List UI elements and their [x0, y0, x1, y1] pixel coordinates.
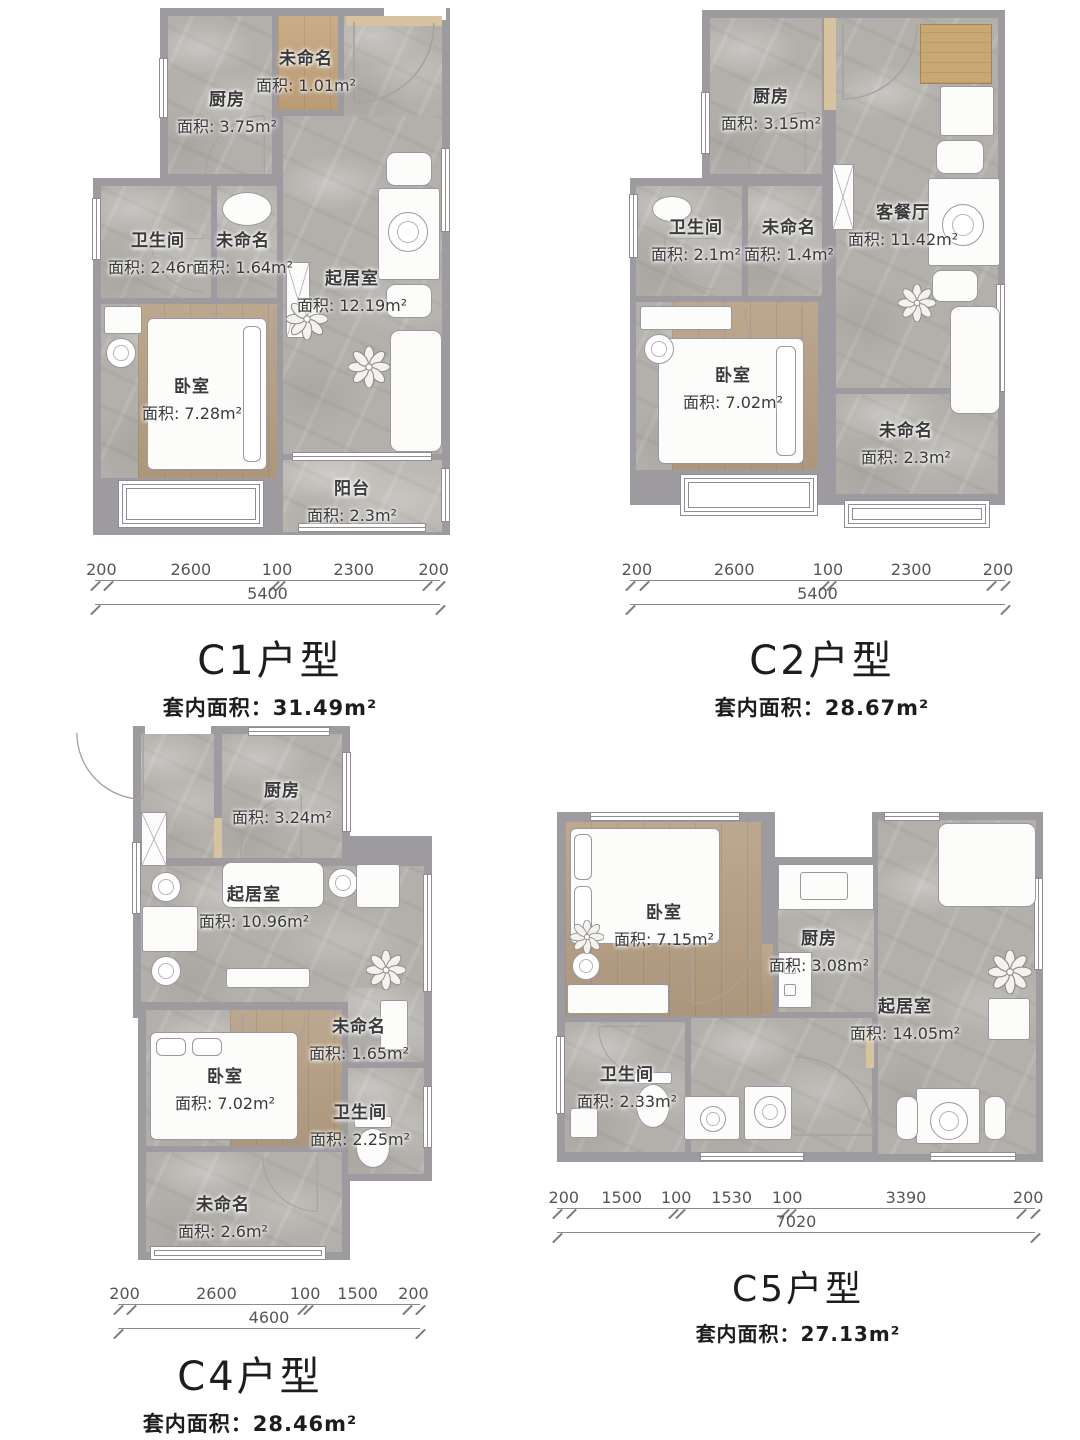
plant-symbol	[348, 346, 390, 388]
bay-window	[680, 474, 818, 516]
dim-seg: 200	[95, 558, 108, 580]
dim-seg: 1500	[308, 1282, 406, 1304]
room-name: 起居室	[199, 880, 309, 905]
room-label: 起居室面积: 14.05m²	[850, 992, 960, 1044]
dim-seg: 2600	[108, 558, 274, 580]
window	[930, 1152, 1016, 1161]
plan-area: 套内面积：28.46m²	[143, 1408, 358, 1438]
chair	[932, 270, 978, 302]
sofa	[950, 306, 1000, 414]
room-label: 厨房面积: 3.15m²	[721, 82, 821, 134]
window	[884, 812, 940, 821]
room-area: 面积: 1.4m²	[744, 241, 834, 265]
dim-seg: 200	[1021, 1186, 1035, 1208]
room-name: 卫生间	[651, 213, 741, 238]
room-area: 面积: 10.96m²	[199, 908, 309, 932]
bed-pillow	[574, 834, 592, 880]
plant-symbol	[898, 284, 936, 322]
room-area: 面积: 2.33m²	[577, 1088, 677, 1112]
dim-seg: 100	[784, 1186, 791, 1208]
side-table	[328, 868, 358, 898]
window	[423, 1086, 432, 1148]
burner	[784, 984, 796, 996]
room-name: 客餐厅	[848, 198, 958, 223]
washing-machine	[106, 338, 136, 368]
window	[248, 727, 330, 736]
plan-title: C4户型	[143, 1344, 358, 1402]
room-area: 面积: 7.02m²	[683, 389, 783, 413]
window	[556, 1036, 565, 1114]
dimension-lines: 200 2600 100 1500 200 4600	[118, 1282, 420, 1329]
window	[441, 148, 450, 232]
washer-drum	[754, 1096, 786, 1128]
room-label: 阳台面积: 2.3m²	[307, 474, 397, 526]
floorplan-sheet: 未命名面积: 1.01m² 厨房面积: 3.75m² 卫生间面积: 2.46m²…	[0, 0, 1080, 1440]
plan-title: C5户型	[696, 1260, 901, 1312]
shelf	[640, 306, 732, 330]
balcony-door-window	[292, 452, 432, 461]
room-area: 面积: 14.05m²	[850, 1020, 960, 1044]
tv-bench	[226, 968, 310, 988]
dimension-lines: 200 1500 100 1530 100 3390 200 7020	[557, 1186, 1035, 1233]
window	[590, 812, 740, 821]
room-name: 卧室	[614, 898, 714, 923]
plant-symbol	[570, 920, 604, 954]
chair	[386, 152, 432, 186]
room-label: 厨房面积: 3.24m²	[232, 776, 332, 828]
room-label: 卧室面积: 7.02m²	[175, 1062, 275, 1114]
dimension-segments: 200 1500 100 1530 100 3390 200	[557, 1186, 1035, 1209]
dim-seg: 1500	[571, 1186, 673, 1208]
dimension-lines: 200 2600 100 2300 200 5400	[95, 558, 440, 605]
room-label: 未命名面积: 1.64m²	[193, 226, 293, 278]
door-swing	[794, 1056, 874, 1136]
cabinet	[940, 86, 994, 136]
plan-title-c5: C5户型 套内面积：27.13m²	[696, 1260, 901, 1347]
chair	[896, 1096, 918, 1140]
room-area: 面积: 7.28m²	[142, 400, 242, 424]
dim-seg: 3390	[791, 1186, 1022, 1208]
room-name: 起居室	[850, 992, 960, 1017]
door-swing	[842, 24, 918, 100]
room-label: 未命名面积: 1.65m²	[309, 1012, 409, 1064]
cabinet	[356, 864, 400, 908]
window	[423, 874, 432, 992]
wood-cabinet	[920, 24, 992, 84]
dining-table	[142, 906, 198, 952]
room-name: 阳台	[307, 474, 397, 499]
window	[159, 58, 168, 118]
room-label: 卧室面积: 7.02m²	[683, 361, 783, 413]
room-label: 卧室面积: 7.28m²	[142, 372, 242, 424]
washing-machine	[644, 334, 674, 364]
dimension-total: 7020	[557, 1210, 1035, 1233]
room-name: 厨房	[721, 82, 821, 107]
room-area: 面积: 1.65m²	[309, 1040, 409, 1064]
plan-title-c4: C4户型 套内面积：28.46m²	[143, 1344, 358, 1438]
room-name: 卫生间	[310, 1098, 410, 1123]
chair	[936, 140, 984, 174]
room-name: 卧室	[142, 372, 242, 397]
bed-pillow	[156, 1038, 186, 1056]
bed-pillow	[243, 326, 261, 462]
bay-window	[118, 480, 264, 528]
door-swing	[353, 22, 435, 104]
dim-seg: 200	[557, 1186, 571, 1208]
entry-threshold	[824, 18, 836, 110]
dim-seg: 2600	[131, 1282, 302, 1304]
room-area: 面积: 7.02m²	[175, 1090, 275, 1114]
plan-title: C2户型	[715, 628, 930, 686]
wash-basin	[222, 192, 272, 226]
dim-seg: 2600	[644, 558, 825, 580]
chair	[984, 1096, 1006, 1140]
plan-title: C1户型	[163, 628, 378, 686]
room-name: 厨房	[177, 85, 277, 110]
basin	[700, 1106, 726, 1132]
plate	[930, 1102, 968, 1140]
room-name: 卧室	[683, 361, 783, 386]
room-label: 厨房面积: 3.08m²	[769, 924, 869, 976]
door-swing	[76, 728, 144, 804]
window	[92, 198, 101, 260]
room-name: 厨房	[769, 924, 869, 949]
dim-seg: 200	[427, 558, 440, 580]
dim-seg: 200	[991, 558, 1005, 580]
room-label: 起居室面积: 10.96m²	[199, 880, 309, 932]
stool	[151, 956, 181, 986]
window	[700, 1152, 804, 1161]
room-name: 起居室	[297, 264, 407, 289]
room-name: 厨房	[232, 776, 332, 801]
dim-seg: 2300	[280, 558, 427, 580]
dimension-total: 5400	[630, 582, 1005, 605]
plan-area: 套内面积：27.13m²	[696, 1318, 901, 1347]
room-name: 未命名	[309, 1012, 409, 1037]
room-label: 卫生间面积: 2.33m²	[577, 1060, 677, 1112]
plan-area: 套内面积：28.67m²	[715, 692, 930, 722]
dim-seg: 1530	[680, 1186, 784, 1208]
room-area: 面积: 3.08m²	[769, 952, 869, 976]
window	[441, 468, 450, 522]
sofa	[390, 330, 442, 452]
bed-pillow	[192, 1038, 222, 1056]
shower-tray	[570, 1108, 598, 1138]
plan-area: 套内面积：31.49m²	[163, 692, 378, 722]
room-label: 未命名面积: 2.3m²	[861, 416, 951, 468]
threshold	[214, 818, 222, 858]
dimension-segments: 200 2600 100 2300 200	[95, 558, 440, 581]
room-name: 未命名	[178, 1190, 268, 1215]
window	[342, 752, 351, 832]
room-label: 客餐厅面积: 11.42m²	[848, 198, 958, 250]
room-label: 未命名面积: 1.4m²	[744, 213, 834, 265]
plate	[388, 212, 428, 252]
room-label: 卫生间面积: 2.25m²	[310, 1098, 410, 1150]
dimension-total: 5400	[95, 582, 440, 605]
dimension-segments: 200 2600 100 2300 200	[630, 558, 1005, 581]
room-name: 未命名	[744, 213, 834, 238]
window	[629, 194, 638, 258]
plan-title-c2: C2户型 套内面积：28.67m²	[715, 628, 930, 722]
room-area: 面积: 1.64m²	[193, 254, 293, 278]
room-label: 卫生间面积: 2.1m²	[651, 213, 741, 265]
bay-window	[150, 1246, 326, 1260]
plan-title-c1: C1户型 套内面积：31.49m²	[163, 628, 378, 722]
stool	[151, 872, 181, 902]
room-area: 面积: 2.25m²	[310, 1126, 410, 1150]
room-area: 面积: 3.15m²	[721, 110, 821, 134]
plant-symbol	[366, 950, 406, 990]
dim-seg: 200	[630, 558, 644, 580]
washing-machine	[572, 952, 600, 980]
room-label: 卧室面积: 7.15m²	[614, 898, 714, 950]
dimension-total: 4600	[118, 1306, 420, 1329]
room-area: 面积: 2.3m²	[861, 444, 951, 468]
window	[132, 842, 141, 914]
dim-seg: 100	[824, 558, 831, 580]
room-area: 面积: 2.6m²	[178, 1218, 268, 1242]
room-label: 起居室面积: 12.19m²	[297, 264, 407, 316]
shelf	[104, 306, 142, 334]
room-area: 面积: 2.1m²	[651, 241, 741, 265]
room-area: 面积: 3.24m²	[232, 804, 332, 828]
room-area: 面积: 3.75m²	[177, 113, 277, 137]
door-swing	[692, 944, 752, 1004]
room-area: 面积: 2.3m²	[307, 502, 397, 526]
plant-symbol	[988, 950, 1032, 994]
bay-window	[844, 500, 990, 528]
dimension-segments: 200 2600 100 1500 200	[118, 1282, 420, 1305]
room-label: 厨房面积: 3.75m²	[177, 85, 277, 137]
fridge	[141, 812, 167, 866]
room-area: 面积: 7.15m²	[614, 926, 714, 950]
closet	[567, 984, 669, 1014]
room-area: 面积: 11.42m²	[848, 226, 958, 250]
door-swing	[262, 1156, 318, 1212]
window	[701, 92, 710, 154]
dim-seg: 200	[407, 1282, 420, 1304]
dim-seg: 200	[118, 1282, 131, 1304]
room-name: 卫生间	[577, 1060, 677, 1085]
dimension-lines: 200 2600 100 2300 200 5400	[630, 558, 1005, 605]
kitchen-sink	[800, 872, 848, 900]
room-name: 未命名	[861, 416, 951, 441]
room-name: 未命名	[256, 44, 356, 69]
cabinet	[988, 998, 1030, 1040]
room-name: 未命名	[193, 226, 293, 251]
dim-seg: 2300	[831, 558, 991, 580]
dim-seg: 100	[673, 1186, 680, 1208]
room-label: 未命名面积: 2.6m²	[178, 1190, 268, 1242]
room-area: 面积: 12.19m²	[297, 292, 407, 316]
room-name: 卧室	[175, 1062, 275, 1087]
sofa	[938, 823, 1036, 907]
